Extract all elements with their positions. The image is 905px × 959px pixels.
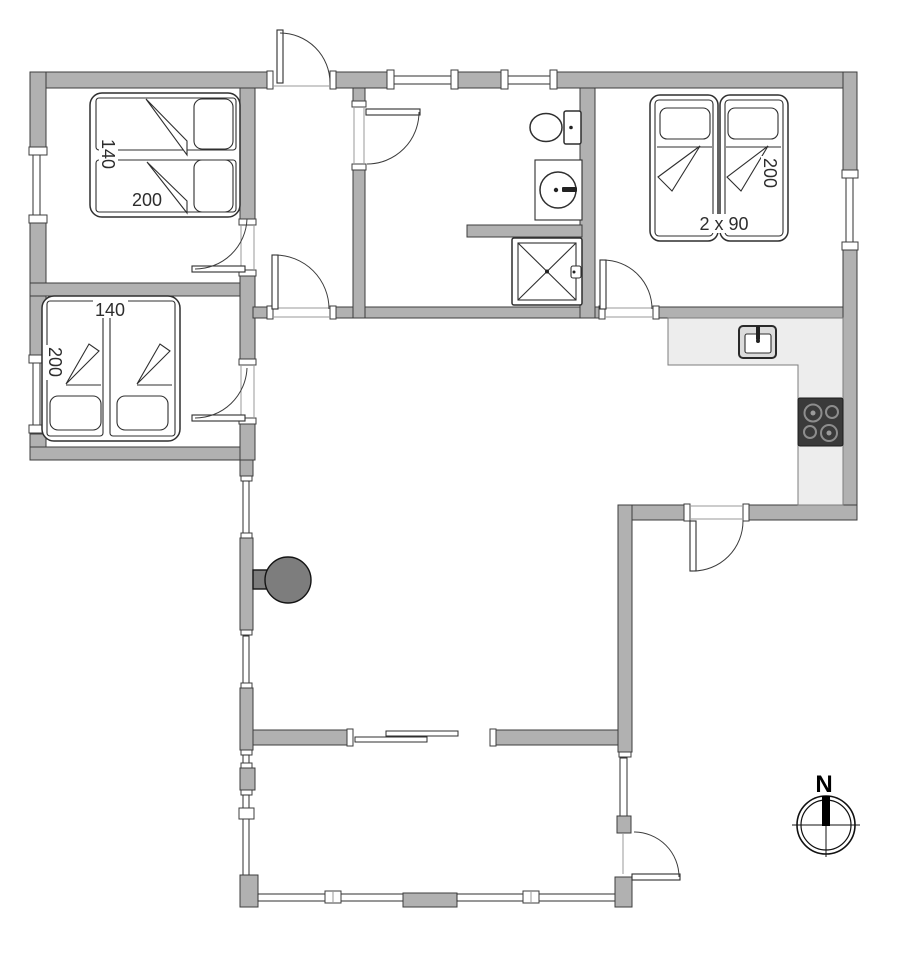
wall-top-2	[330, 72, 393, 88]
wall-living-east	[618, 505, 632, 752]
door-jamb-cap	[239, 359, 256, 365]
kitchen-faucet-base	[756, 339, 760, 343]
terrace-door-jamb	[617, 816, 631, 833]
compass-north-needle	[822, 796, 830, 826]
wood-stove	[253, 557, 311, 603]
wall-living-south-a	[252, 730, 353, 745]
post-cap	[241, 533, 252, 538]
bedroom1-door	[192, 219, 247, 272]
cooktop	[798, 398, 843, 446]
bedroom-bottom-left-bed: 140 200	[42, 296, 180, 441]
terrace-corner-sw	[240, 875, 258, 907]
door-jamb-cap	[743, 504, 749, 521]
wall-cap	[490, 729, 496, 746]
post-cap	[241, 476, 252, 481]
bathroom-sink	[535, 160, 582, 220]
door-jamb-cap	[653, 306, 659, 319]
bed-length-label: 200	[760, 158, 780, 188]
terrace-sill	[403, 893, 457, 907]
bathroom-door	[366, 109, 420, 164]
terrace-window-west-2	[243, 636, 249, 683]
bedroom2-door	[192, 368, 247, 421]
window-cap	[29, 147, 47, 155]
door-swing-arc	[280, 33, 330, 83]
wall-cap	[347, 729, 353, 746]
door-leaf	[600, 260, 606, 309]
pillow	[194, 160, 233, 212]
wall-hall-west-a	[240, 88, 255, 225]
pillow	[50, 396, 101, 430]
bed-width-label: 140	[98, 139, 118, 169]
pillow	[660, 108, 710, 139]
door-swing-arc	[693, 521, 743, 571]
door-swing-arc	[195, 368, 247, 418]
wall-mid-center	[330, 307, 605, 318]
post-cap	[241, 630, 252, 635]
wall-bedroom2-south	[30, 447, 255, 460]
bedroom-right-beds: 2 x 90 200	[650, 95, 788, 241]
sink-faucet	[562, 187, 577, 192]
terrace-window-west-4	[243, 795, 249, 875]
pillow	[194, 99, 233, 149]
door-jamb-cap	[330, 306, 336, 319]
kitchen-faucet	[756, 326, 760, 340]
sink-drain	[554, 188, 558, 192]
pillow	[117, 396, 168, 430]
wall-right-1	[843, 72, 857, 170]
bed-length-label: 200	[132, 190, 162, 210]
cooktop-surface	[798, 398, 843, 446]
door-leaf	[272, 255, 278, 309]
door-jamb-cap	[239, 219, 256, 225]
compass-north-label: N	[815, 771, 832, 798]
window-cap	[501, 70, 508, 89]
door-swing-arc	[603, 260, 652, 309]
window-cap	[451, 70, 458, 89]
wall-living-south-b	[490, 730, 618, 745]
bedroom3-door	[600, 260, 652, 309]
kitchen-back-door	[690, 521, 743, 571]
wall-mid-east	[653, 307, 843, 318]
wall-top-3	[458, 72, 502, 88]
wall-top-4	[557, 72, 857, 88]
door-swing-arc	[195, 219, 247, 269]
floorplan-page: 140 200 140 200 2 x 90 200	[0, 0, 905, 959]
window-cap	[387, 70, 394, 89]
wood-stove-body	[265, 557, 311, 603]
sliding-door-panel-2	[386, 731, 458, 736]
door-jamb-cap	[352, 101, 366, 107]
door-swing-arc	[634, 832, 679, 877]
kitchen	[668, 318, 843, 505]
door-jamb-cap	[352, 164, 366, 170]
bed-size-label: 2 x 90	[699, 214, 748, 234]
terrace-window-west-1	[243, 481, 249, 533]
sliding-door-panel-1	[355, 737, 427, 742]
terrace-post	[240, 688, 253, 750]
window-cap	[842, 242, 858, 250]
terrace-corner-se	[615, 877, 632, 907]
door-leaf	[366, 109, 420, 115]
door-swing-arc	[275, 255, 329, 309]
bed-width-label: 140	[95, 300, 125, 320]
wall-top-1	[30, 72, 273, 88]
post-cap	[241, 683, 252, 688]
burner-center	[811, 411, 816, 416]
terrace-structure	[239, 460, 632, 907]
terrace-window-east	[620, 758, 627, 816]
door-jamb-cap	[330, 71, 336, 89]
door-leaf	[632, 874, 680, 880]
terrace-post	[240, 768, 255, 790]
window-joint	[239, 808, 254, 819]
post-cap	[619, 752, 631, 757]
bathroom-fixtures	[512, 111, 582, 305]
window-left-1	[33, 155, 40, 215]
post-cap	[241, 763, 252, 768]
door-jamb-cap	[684, 504, 690, 521]
shower-handle-dot	[573, 271, 576, 274]
window-cap	[29, 215, 47, 223]
toilet-bowl	[530, 114, 562, 142]
wall-bathroom-west-b	[353, 164, 365, 318]
door-leaf	[690, 521, 696, 571]
terrace-post	[240, 538, 253, 630]
wall-kitchen-south-b	[743, 505, 857, 520]
post-cap	[241, 750, 252, 755]
bed-length-label: 200	[45, 347, 65, 377]
door-jamb-cap	[267, 71, 273, 89]
shower-drain	[545, 270, 549, 274]
floorplan-drawing: 140 200 140 200 2 x 90 200	[0, 0, 905, 959]
door-leaf	[277, 30, 283, 83]
kitchen-sink	[739, 326, 776, 358]
window-right	[846, 178, 853, 242]
terrace-post	[240, 460, 253, 476]
pillow	[728, 108, 778, 139]
window-cap	[842, 170, 858, 178]
wall-left-1	[30, 72, 46, 147]
window-top-1	[393, 76, 458, 84]
entrance-door	[277, 30, 330, 83]
compass-rose: N	[792, 771, 860, 857]
wall-shower-stub	[467, 225, 582, 237]
terrace-door	[632, 832, 680, 880]
wall-bedroom-separator	[30, 283, 255, 296]
hall-living-door	[272, 255, 329, 309]
burner-center	[827, 431, 832, 436]
door-swing-arc	[367, 112, 419, 164]
post-cap	[241, 790, 252, 795]
window-top-2	[502, 76, 557, 84]
window-cap	[550, 70, 557, 89]
window-left-2	[33, 363, 40, 425]
bedroom-top-left-bed: 140 200	[90, 93, 240, 217]
wall-right-2	[843, 250, 857, 520]
shower	[512, 238, 582, 305]
toilet-button	[569, 126, 573, 130]
toilet	[530, 111, 581, 144]
